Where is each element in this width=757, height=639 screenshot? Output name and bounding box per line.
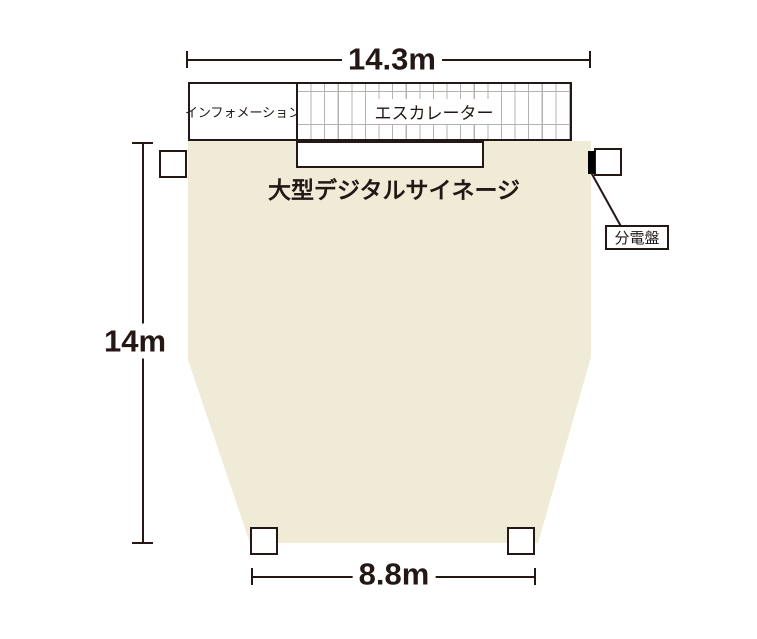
anchor-square-top-right	[594, 148, 622, 176]
information-label: インフォメーション	[185, 102, 301, 121]
distribution-board-marker	[588, 151, 595, 174]
top-dimension-label: 14.3m	[342, 42, 442, 77]
escalator-grid-line-top	[298, 91, 570, 92]
anchor-square-top-left	[159, 150, 187, 178]
signage-panel	[296, 141, 484, 168]
top-dimension-tick-right	[589, 51, 591, 68]
bottom-dimension-tick-right	[534, 568, 536, 585]
escalator-area: エスカレーター	[296, 82, 572, 141]
bottom-dimension-label: 8.8m	[353, 557, 436, 592]
left-dimension-tick-bottom	[132, 542, 153, 544]
top-dimension-tick-left	[186, 51, 188, 68]
distribution-board-label: 分電盤	[614, 227, 659, 248]
escalator-label: エスカレーター	[371, 99, 498, 124]
anchor-square-bottom-left	[250, 527, 278, 555]
left-dimension-tick-top	[132, 142, 153, 144]
floor-plan-canvas: 14.3m インフォメーション エスカレーター 大型デジタルサイネージ 14m …	[0, 0, 757, 639]
bottom-dimension-tick-left	[251, 568, 253, 585]
left-dimension-label: 14m	[98, 324, 172, 359]
distribution-board-leader-line	[591, 172, 623, 228]
anchor-square-bottom-right	[507, 527, 535, 555]
escalator-grid-line-bottom	[298, 124, 570, 125]
distribution-board-label-box: 分電盤	[605, 225, 669, 250]
information-room: インフォメーション	[188, 82, 298, 141]
signage-label: 大型デジタルサイネージ	[268, 171, 520, 205]
